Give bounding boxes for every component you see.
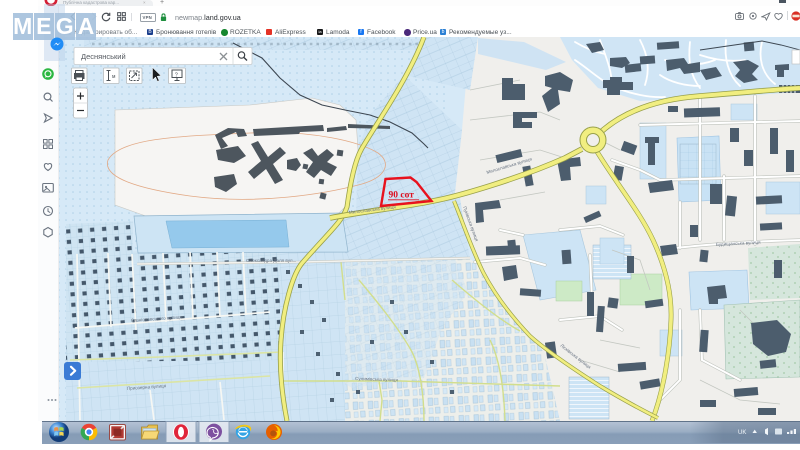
svg-text:Олександра Даля вул...: Олександра Даля вул... bbox=[246, 258, 296, 263]
svg-text:Деснянський: Деснянський bbox=[81, 52, 126, 61]
svg-text:90 сот: 90 сот bbox=[389, 191, 415, 201]
svg-text:?: ? bbox=[175, 73, 178, 79]
svg-text:м: м bbox=[112, 74, 116, 80]
svg-text:UK: UK bbox=[738, 430, 746, 436]
